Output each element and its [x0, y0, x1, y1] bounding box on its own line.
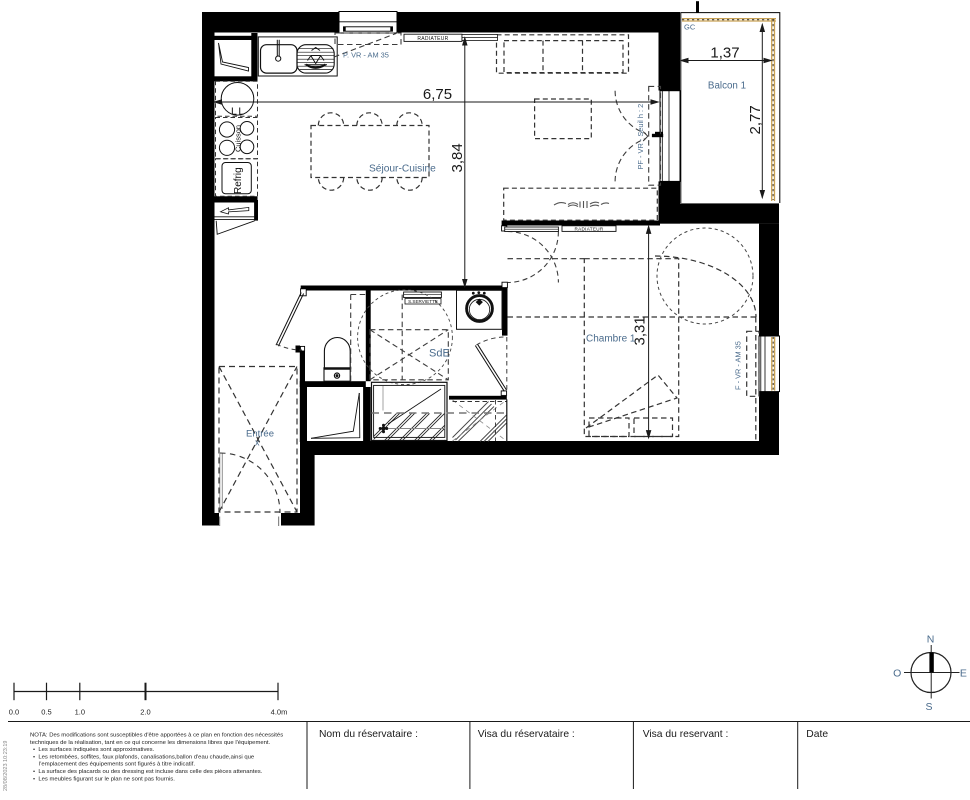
- svg-text:Entrée: Entrée: [246, 429, 274, 440]
- svg-text:S.SERVIETTE: S.SERVIETTE: [408, 299, 438, 304]
- svg-text:LL: LL: [231, 106, 246, 118]
- svg-text:PF - VR - Seuil h : 2: PF - VR - Seuil h : 2: [636, 104, 645, 170]
- svg-text:28/08/2023 10:23:19: 28/08/2023 10:23:19: [3, 741, 9, 791]
- svg-text:Nom du réservataire :: Nom du réservataire :: [319, 729, 418, 740]
- svg-text:NOTA: Des modifications sont s: NOTA: Des modifications sont susceptible…: [30, 733, 283, 739]
- svg-text:• Les retombées, soffites, fa: • Les retombées, soffites, faux plafonds…: [33, 754, 255, 760]
- svg-text:RADIATEUR: RADIATEUR: [417, 36, 448, 42]
- svg-text:RADIATEUR: RADIATEUR: [575, 226, 604, 231]
- svg-text:• Les surfaces indiquées sont: • Les surfaces indiquées sont approximat…: [33, 747, 155, 753]
- svg-text:0.5: 0.5: [41, 708, 51, 717]
- svg-text:S: S: [925, 701, 932, 713]
- svg-text:Refrig: Refrig: [233, 167, 244, 194]
- svg-text:Visa du reservant :: Visa du reservant :: [643, 729, 729, 740]
- svg-text:2,77: 2,77: [747, 105, 764, 134]
- svg-text:• La surface des placards ou: • La surface des placards ou des dressin…: [33, 769, 263, 775]
- svg-text:Date: Date: [806, 729, 828, 740]
- svg-text:1,37: 1,37: [710, 45, 739, 62]
- svg-text:O: O: [893, 668, 901, 680]
- svg-text:2.0: 2.0: [140, 708, 150, 717]
- svg-text:N: N: [927, 634, 935, 646]
- svg-text:6,75: 6,75: [423, 86, 452, 103]
- svg-text:0.0: 0.0: [9, 708, 19, 717]
- svg-text:1.0: 1.0: [75, 708, 85, 717]
- svg-text:Cuisson: Cuisson: [234, 125, 243, 152]
- svg-text:Balcon 1: Balcon 1: [708, 81, 746, 92]
- svg-text:• Les meubles figurant sur le: • Les meubles figurant sur le plan ne so…: [33, 776, 175, 782]
- svg-text:P. VR - AM 35: P. VR - AM 35: [343, 51, 389, 60]
- svg-text:F - VR - AM 35: F - VR - AM 35: [734, 341, 743, 390]
- svg-text:Visa du réservataire :: Visa du réservataire :: [478, 729, 575, 740]
- svg-text:x: x: [255, 438, 260, 448]
- svg-text:4.0m: 4.0m: [271, 708, 288, 717]
- svg-text:l'emplacement des équipements: l'emplacement des équipements sont figur…: [39, 762, 195, 768]
- svg-text:Séjour-Cuisine: Séjour-Cuisine: [369, 164, 436, 175]
- svg-text:SdE: SdE: [429, 348, 450, 360]
- svg-text:techniques de la réalisation,: techniques de la réalisation, tant en ce…: [30, 740, 271, 746]
- svg-text:GC: GC: [684, 23, 696, 32]
- svg-text:Chambre 1: Chambre 1: [586, 334, 636, 345]
- svg-text:3,84: 3,84: [449, 143, 466, 172]
- svg-text:E: E: [960, 668, 967, 680]
